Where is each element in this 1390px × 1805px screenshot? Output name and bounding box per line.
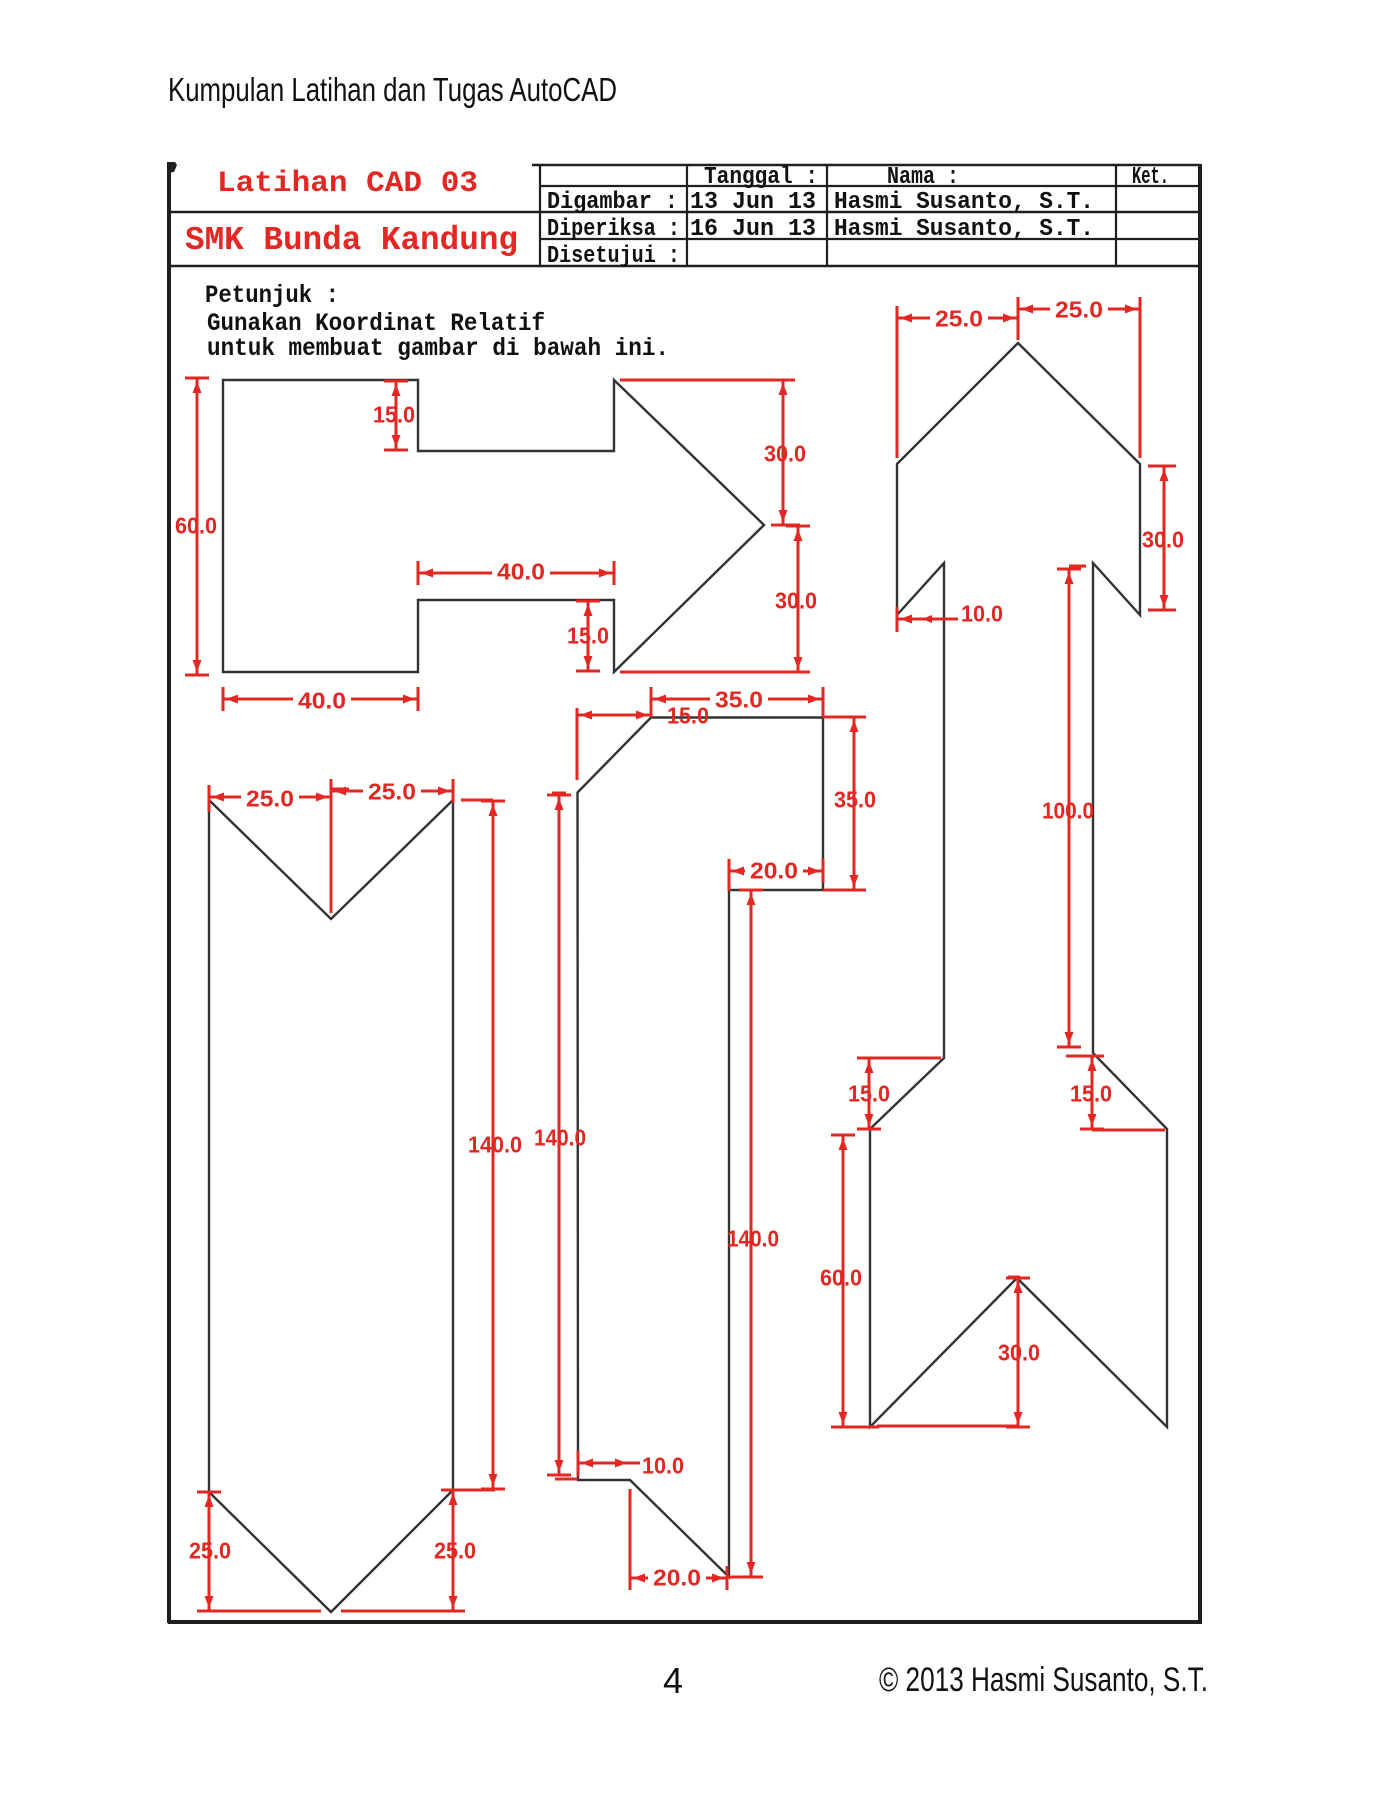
svg-text:4: 4 — [663, 1660, 683, 1701]
svg-text:25.0: 25.0 — [246, 785, 294, 811]
svg-text:16 Jun 13: 16 Jun 13 — [690, 216, 816, 243]
svg-text:25.0: 25.0 — [935, 305, 983, 331]
svg-text:15.0: 15.0 — [667, 702, 709, 728]
svg-text:30.0: 30.0 — [775, 587, 817, 613]
svg-text:25.0: 25.0 — [189, 1537, 231, 1563]
svg-text:35.0: 35.0 — [834, 786, 876, 812]
svg-text:Latihan CAD 03: Latihan CAD 03 — [217, 167, 478, 201]
svg-text:13 Jun 13: 13 Jun 13 — [690, 189, 816, 216]
svg-text:15.0: 15.0 — [848, 1080, 890, 1106]
svg-text:Disetujui :: Disetujui : — [547, 243, 680, 270]
svg-text:Nama :: Nama : — [887, 164, 959, 191]
svg-text:40.0: 40.0 — [298, 687, 346, 713]
svg-text:Hasmi Susanto, S.T.: Hasmi Susanto, S.T. — [834, 189, 1094, 216]
svg-text:untuk membuat gambar di bawah: untuk membuat gambar di bawah ini. — [207, 334, 669, 363]
svg-text:Ket.: Ket. — [1132, 164, 1169, 191]
svg-text:Digambar :: Digambar : — [547, 189, 678, 216]
svg-text:25.0: 25.0 — [1055, 296, 1103, 322]
svg-text:15.0: 15.0 — [567, 622, 609, 648]
svg-text:30.0: 30.0 — [1142, 526, 1184, 552]
svg-text:30.0: 30.0 — [998, 1339, 1040, 1365]
svg-text:40.0: 40.0 — [497, 558, 545, 584]
svg-text:140.0: 140.0 — [534, 1124, 586, 1150]
svg-text:35.0: 35.0 — [715, 686, 763, 712]
svg-text:SMK Bunda Kandung: SMK Bunda Kandung — [185, 222, 518, 259]
svg-text:15.0: 15.0 — [373, 401, 415, 427]
svg-text:15.0: 15.0 — [1070, 1080, 1112, 1106]
svg-text:Tanggal :: Tanggal : — [704, 164, 818, 191]
svg-text:10.0: 10.0 — [961, 600, 1003, 626]
svg-text:60.0: 60.0 — [820, 1264, 862, 1290]
svg-text:Hasmi Susanto, S.T.: Hasmi Susanto, S.T. — [834, 216, 1094, 243]
svg-text:20.0: 20.0 — [653, 1564, 701, 1590]
svg-text:25.0: 25.0 — [368, 778, 416, 804]
svg-text:20.0: 20.0 — [750, 857, 798, 883]
svg-text:140.0: 140.0 — [727, 1225, 779, 1251]
svg-text:100.0: 100.0 — [1042, 797, 1094, 823]
svg-text:25.0: 25.0 — [434, 1537, 476, 1563]
svg-text:© 2013 Hasmi Susanto, S.T.: © 2013 Hasmi Susanto, S.T. — [879, 1661, 1208, 1699]
svg-text:30.0: 30.0 — [764, 440, 806, 466]
svg-text:10.0: 10.0 — [642, 1452, 684, 1478]
svg-text:140.0: 140.0 — [468, 1131, 522, 1157]
svg-text:Kumpulan Latihan dan Tugas Aut: Kumpulan Latihan dan Tugas AutoCAD — [168, 71, 617, 108]
svg-text:60.0: 60.0 — [175, 512, 217, 538]
svg-text:Diperiksa :: Diperiksa : — [547, 216, 680, 243]
svg-text:Petunjuk :: Petunjuk : — [205, 281, 339, 310]
